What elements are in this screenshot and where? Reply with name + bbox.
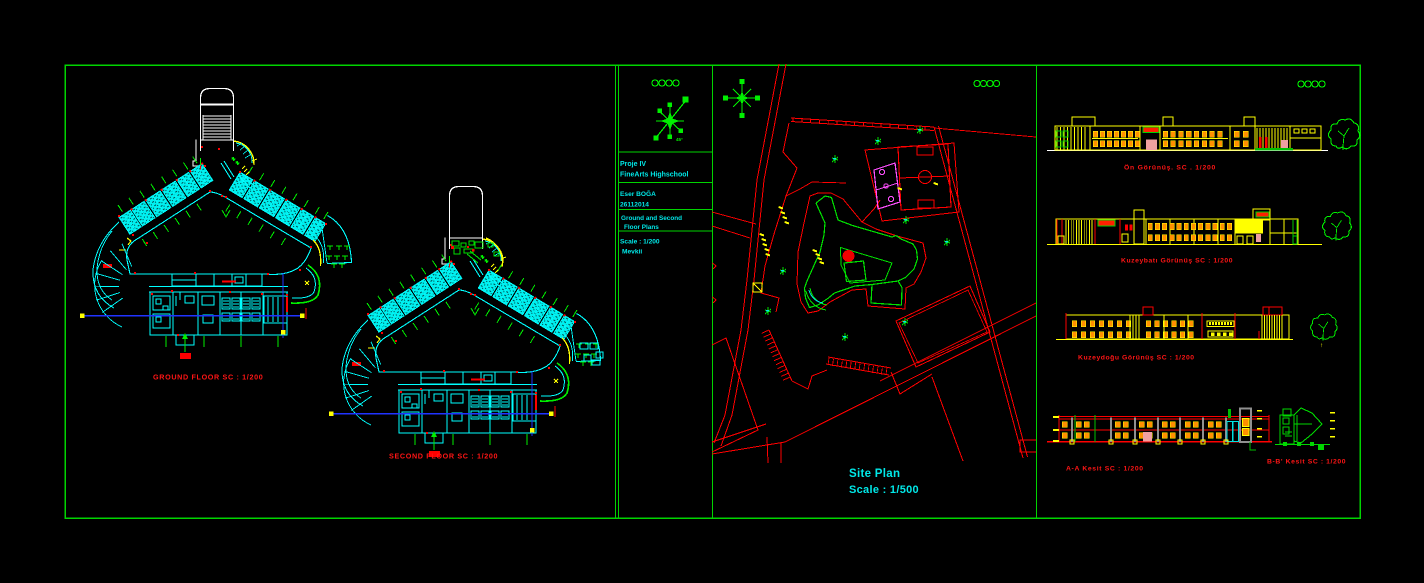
svg-text:Proje IV: Proje IV — [620, 161, 646, 168]
svg-text:Kuzeydoğu Görünüş SC : 1/200: Kuzeydoğu Görünüş SC : 1/200 — [1078, 355, 1195, 362]
svg-text:GROUND FLOOR SC : 1/200: GROUND FLOOR SC : 1/200 — [153, 373, 263, 382]
svg-text:SECOND FLOOR SC : 1/200: SECOND FLOOR SC : 1/200 — [389, 452, 498, 461]
svg-text:↑: ↑ — [1320, 343, 1323, 349]
svg-text:Ön Görünüş. SC . 1/200: Ön Görünüş. SC . 1/200 — [1124, 163, 1216, 172]
svg-text:Kuzeybatı Görünüş SC : 1/200: Kuzeybatı Görünüş SC : 1/200 — [1121, 258, 1233, 265]
svg-text:Floor Plans: Floor Plans — [624, 224, 659, 231]
svg-text:Ground and Second: Ground and Second — [621, 215, 682, 222]
svg-text:Eser BOĞA: Eser BOĞA — [620, 189, 656, 198]
svg-text:Scale : 1/500: Scale : 1/500 — [849, 484, 919, 496]
svg-text:Mevkii: Mevkii — [622, 249, 642, 256]
svg-text:Scale : 1/200: Scale : 1/200 — [620, 239, 660, 246]
svg-text:B-B' Kesit SC : 1/200: B-B' Kesit SC : 1/200 — [1267, 459, 1346, 466]
svg-text:Site Plan: Site Plan — [849, 468, 900, 480]
svg-text:A-A Kesit SC : 1/200: A-A Kesit SC : 1/200 — [1066, 466, 1144, 473]
svg-text:26112014: 26112014 — [620, 202, 649, 209]
svg-text:45°: 45° — [676, 137, 683, 142]
svg-text:FineArts Highschool: FineArts Highschool — [620, 172, 689, 179]
